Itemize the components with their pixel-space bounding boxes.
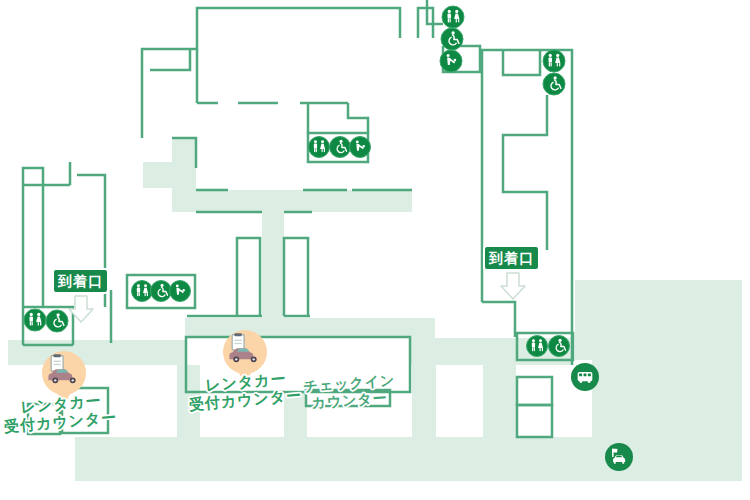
- gate-label-text: 到着口: [57, 273, 103, 289]
- corridor-connector-3: [412, 365, 436, 438]
- taxi-stand-icon: [605, 443, 633, 471]
- wheelchair-icon: [441, 28, 463, 50]
- floor-map-svg: 到着口 到着口 レンタカー 受付カウンター レンタカー 受付カウンター チェック…: [0, 0, 750, 500]
- rental-counter-label-left: レンタカー 受付カウンター: [1, 390, 118, 436]
- wheelchair-icon: [543, 73, 565, 95]
- tower-cell-lower: [517, 405, 552, 437]
- restroom-icon: [132, 281, 153, 302]
- corridor-connector-4: [483, 365, 516, 438]
- restroom-icon: [309, 137, 330, 158]
- gate-label-text: 到着口: [488, 250, 534, 266]
- down-arrow-icon: [501, 273, 525, 299]
- wheelchair-icon: [46, 310, 68, 332]
- restroom-icon: [527, 336, 548, 357]
- wheelchair-icon: [330, 137, 351, 158]
- tower-cell-upper: [517, 377, 552, 405]
- nursing-room-icon: [440, 50, 462, 72]
- arrival-hall-right: [75, 280, 742, 481]
- wheelchair-icon: [549, 336, 570, 357]
- bus-stop-icon: [571, 363, 599, 391]
- restroom-icon: [442, 6, 464, 28]
- nursing-room-icon: [170, 281, 191, 302]
- terminal-floor-map: 到着口 到着口 レンタカー 受付カウンター レンタカー 受付カウンター チェック…: [0, 0, 750, 500]
- wheelchair-icon: [151, 281, 172, 302]
- checkin-counter-label: チェックイン カウンター: [303, 372, 397, 411]
- nursing-room-icon: [350, 137, 371, 158]
- restroom-icon: [543, 50, 565, 72]
- corridor-lip: [185, 318, 435, 338]
- arrival-gate-label-right: 到着口: [484, 246, 539, 299]
- restroom-icon: [24, 309, 46, 331]
- right-tower-walls: [482, 50, 572, 365]
